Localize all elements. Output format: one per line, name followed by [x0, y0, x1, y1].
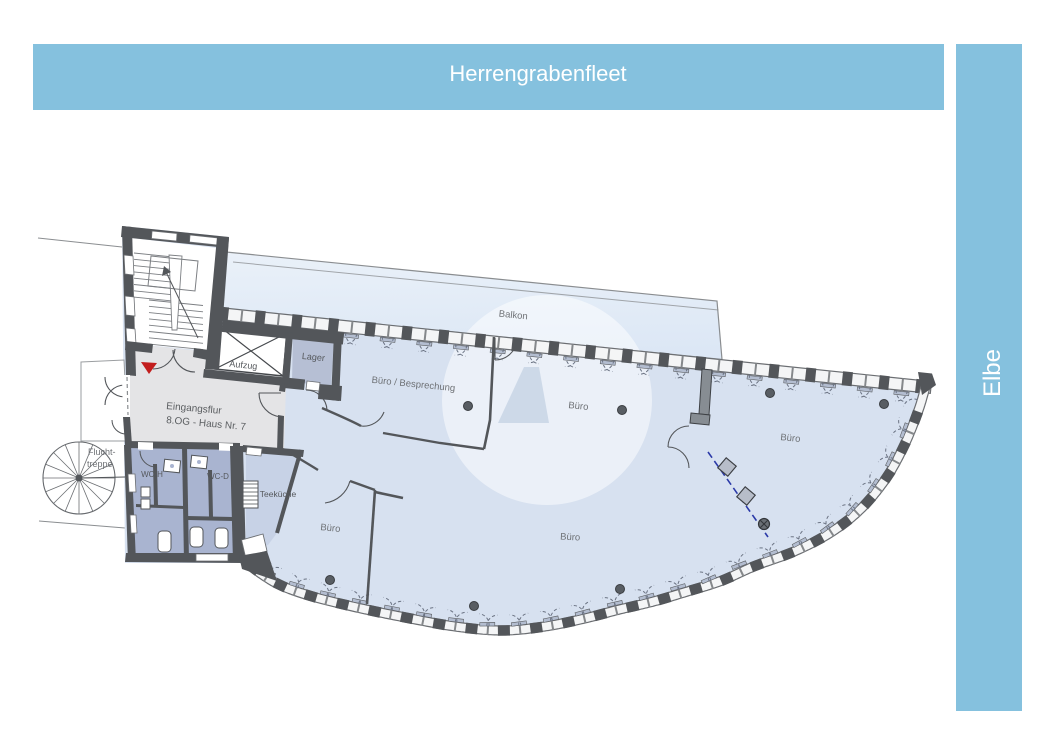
svg-text:Büro: Büro	[568, 400, 589, 413]
svg-text:Teeküche: Teeküche	[260, 489, 297, 499]
svg-text:WC-H: WC-H	[141, 470, 163, 479]
svg-text:Büro: Büro	[780, 432, 801, 445]
svg-text:treppe: treppe	[87, 459, 113, 469]
svg-text:Herrengrabenfleet: Herrengrabenfleet	[449, 61, 626, 86]
svg-text:WC-D: WC-D	[207, 472, 229, 481]
svg-text:Elbe: Elbe	[979, 349, 1006, 397]
svg-text:Büro: Büro	[320, 522, 341, 535]
svg-text:Flucht-: Flucht-	[88, 447, 116, 457]
svg-text:Büro: Büro	[560, 531, 581, 543]
